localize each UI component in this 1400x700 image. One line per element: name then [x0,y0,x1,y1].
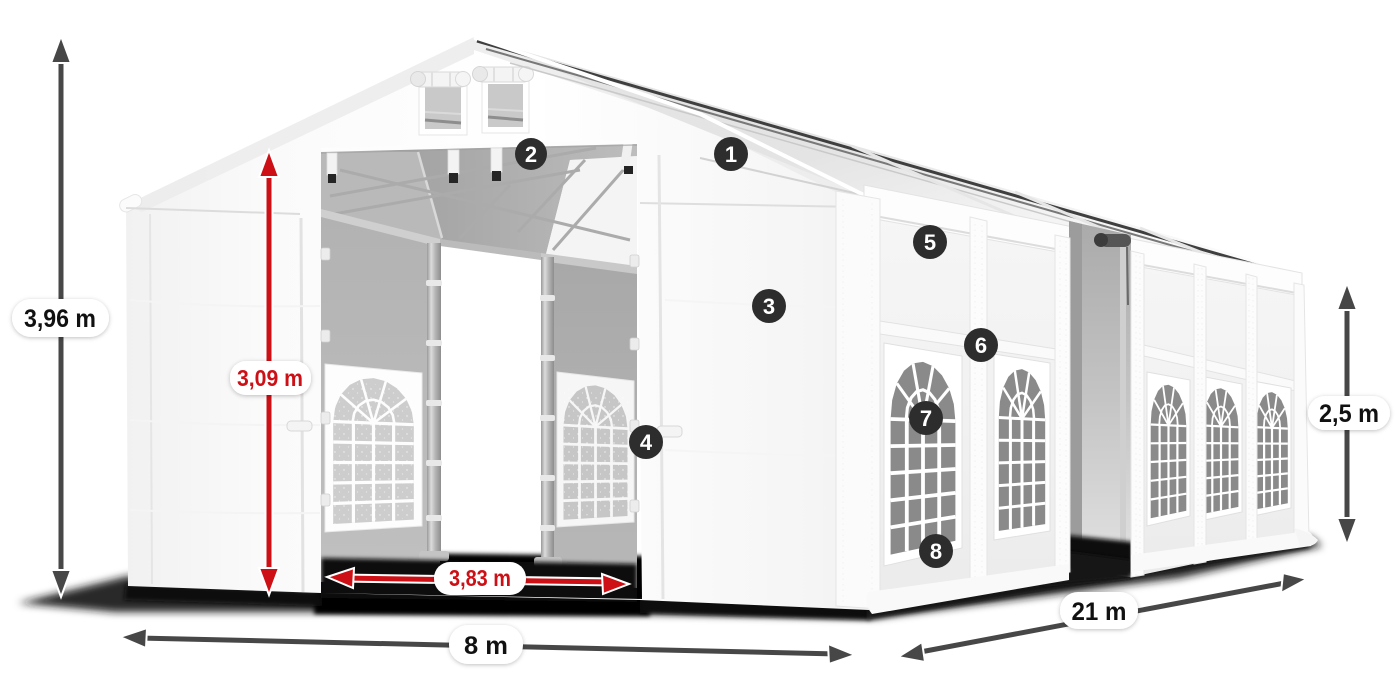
svg-text:4: 4 [640,430,653,455]
svg-text:1: 1 [725,142,737,167]
svg-text:8 m: 8 m [464,632,508,660]
svg-text:6: 6 [975,333,987,358]
svg-text:21 m: 21 m [1072,598,1127,626]
svg-text:3,83 m: 3,83 m [449,565,511,591]
svg-text:8: 8 [930,539,942,564]
svg-text:2,5 m: 2,5 m [1319,400,1379,428]
svg-text:3,96 m: 3,96 m [24,305,96,333]
svg-text:5: 5 [924,230,936,255]
svg-text:2: 2 [525,142,537,167]
svg-text:3: 3 [763,294,775,319]
svg-text:3,09 m: 3,09 m [237,365,303,391]
svg-text:7: 7 [920,406,932,431]
